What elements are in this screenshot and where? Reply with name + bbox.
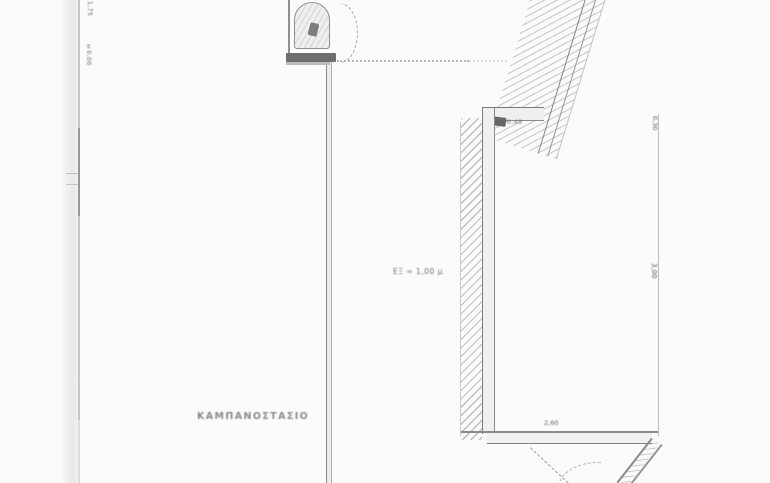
dimension-label-top: 0,30 — [651, 116, 659, 130]
architectural-drawing-canvas: 1,75 ±0,00 0,40 2,60 0,30 3,00 ΚΑΜΠΑΝΟΣΤ… — [0, 0, 770, 483]
right-dimension-line — [658, 114, 659, 436]
center-wall — [326, 60, 332, 483]
level-label: ΕΞ = 1,00 μ — [393, 267, 443, 276]
stair-detail-base — [286, 53, 336, 62]
room-label: ΚΑΜΠΑΝΟΣΤΑΣΙΟ — [197, 411, 309, 422]
left-reference-line-dark-segment — [78, 128, 80, 216]
stair-detail-left-line — [288, 0, 290, 56]
ceiling-dotted-line-faint — [469, 60, 507, 62]
left-reference-line — [78, 0, 80, 483]
hatch-boundary-line — [460, 122, 461, 436]
wall-offset-dimension: 0,40 — [507, 119, 522, 126]
bottom-width-dimension: 2,60 — [544, 419, 558, 427]
right-wall-hatch — [461, 118, 482, 440]
elevation-mark-top: 1,75 — [86, 1, 93, 16]
ceiling-dotted-line — [337, 60, 469, 62]
elevation-mark-mid: ±0,00 — [85, 43, 92, 66]
left-reference-line-faint-segment — [78, 420, 80, 483]
slanted-wall-hatched — [488, 0, 609, 159]
slanted-wall-edge-lines — [538, 0, 601, 156]
paper-edge-shade — [63, 0, 78, 483]
tick-mark — [66, 173, 78, 174]
bottom-wall — [487, 433, 652, 444]
bottom-slant-hatch — [619, 438, 660, 483]
stair-detail-base-shadow — [286, 62, 330, 65]
right-wall — [482, 108, 495, 434]
dimension-label-height: 3,00 — [650, 263, 658, 279]
tick-mark — [66, 184, 78, 185]
